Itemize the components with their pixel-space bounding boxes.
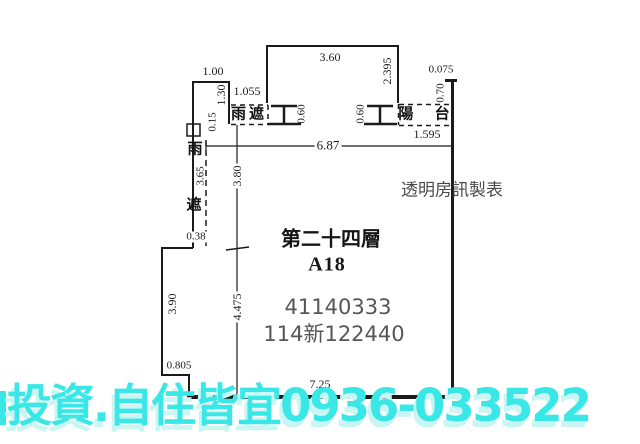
dim-interior-lower: 4.475 [231, 292, 243, 323]
dim-wall-offset: 0.15 [208, 112, 219, 131]
dim-parapet-height: 0.70 [436, 83, 447, 102]
registration-number-2: 114新122440 [263, 318, 404, 348]
registration-number-1: 41140333 [285, 295, 392, 319]
dim-bottom-left-jog: 0.805 [167, 361, 192, 372]
dim-balcony-width: 1.595 [414, 128, 441, 140]
dim-total-width: 6.87 [315, 139, 342, 152]
rain-canopy-top-label: 雨遮 [231, 107, 267, 122]
credit-label: 透明房訊製表 [401, 176, 503, 201]
floor-title: 第二十四層 [281, 223, 381, 252]
dim-left-lower-height: 3.90 [166, 294, 178, 315]
dim-interior-upper: 3.80 [231, 164, 243, 189]
dim-window-right: 0.60 [356, 104, 367, 123]
dim-top-right-small: 0.075 [429, 65, 454, 76]
unit-id: A18 [308, 254, 345, 277]
floor-plan-page: 1.00 3.60 2.395 0.075 0.70 1.055 1.30 0.… [0, 0, 640, 444]
dim-window-left: 0.60 [297, 104, 308, 123]
dim-left-canopy-len: 3.65 [196, 166, 207, 185]
wall-lower-left-step [162, 248, 193, 396]
window-symbol-right [364, 106, 397, 124]
wall-top-left-protrusion [193, 82, 229, 248]
dim-left-jog: 0.38 [184, 232, 207, 243]
dim-canopy-width: 1.055 [234, 85, 261, 97]
watermark-clipped-char-fragment [0, 391, 6, 425]
watermark-text: 投資.自住皆宜0936-033522 [7, 381, 590, 431]
rain-canopy-left-char1: 雨 [187, 142, 202, 157]
dim-top-small-width: 1.00 [203, 65, 224, 77]
dim-canopy-height: 1.30 [215, 85, 227, 106]
balcony-label: 陽 台 [398, 107, 457, 122]
dim-top-right-height: 2.395 [381, 58, 393, 85]
dim-top-big-width: 3.60 [320, 51, 341, 63]
rain-canopy-left-char2: 遮 [186, 198, 201, 213]
